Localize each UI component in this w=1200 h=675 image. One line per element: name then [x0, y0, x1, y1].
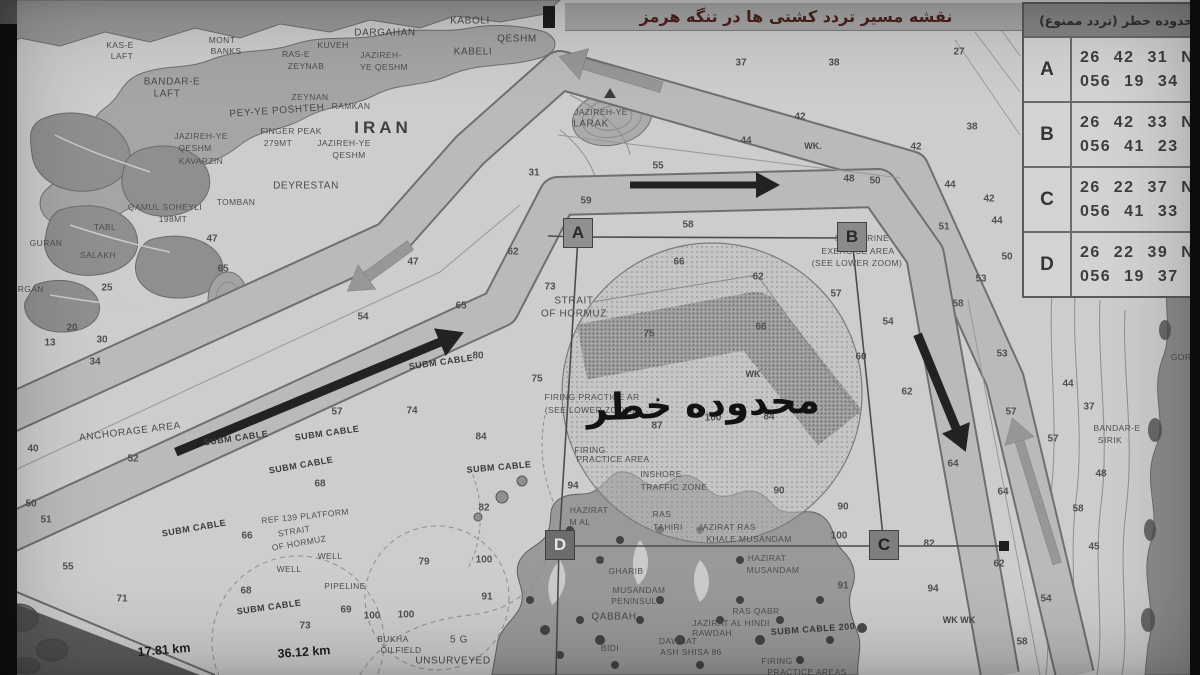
corner-marker-a: A — [563, 218, 593, 248]
depth-number: 48 — [843, 174, 854, 185]
depth-number: 47 — [407, 257, 418, 268]
depth-number: 62 — [901, 387, 912, 398]
place-label: BUKHA — [377, 634, 408, 644]
chart-title: نقشه مسیر تردد کشتی ها در تنگه هرمز — [565, 3, 1027, 31]
place-label: JAZIRAT AL HINDI — [692, 618, 770, 628]
place-label: TAHIRI — [653, 522, 683, 532]
depth-number: 71 — [116, 594, 127, 605]
place-label: IRAN — [354, 118, 412, 138]
chart-photo: KAS-ELAFTMONTBANKSBANDAR-ELAFTDARGAHANKU… — [0, 0, 1200, 675]
latitude-value: 26 22 37 N — [1080, 176, 1200, 200]
place-label: INSHORE — [640, 469, 682, 479]
wreck-label: WK. — [804, 141, 822, 151]
corner-marker-b: B — [837, 222, 867, 252]
depth-number: 54 — [1040, 594, 1051, 605]
place-label: SALAKH — [80, 250, 116, 260]
place-label: TOMBAN — [217, 197, 256, 207]
place-label: MONT — [209, 35, 236, 45]
depth-number: 42 — [983, 194, 994, 205]
place-label: UNSURVEYED — [415, 656, 490, 667]
point-coordinates: 26 22 39 N056 19 37 E — [1072, 233, 1200, 296]
place-label: DEYRESTAN — [273, 181, 339, 192]
place-label: GURAN — [30, 238, 63, 248]
depth-number: 38 — [828, 58, 839, 69]
latitude-value: 26 22 39 N — [1080, 241, 1200, 265]
table-row: D26 22 39 N056 19 37 E — [1024, 231, 1200, 296]
depth-number: 58 — [682, 220, 693, 231]
wreck-label: WK — [746, 369, 761, 379]
longitude-value: 056 19 37 E — [1080, 265, 1200, 289]
place-label: TABL — [94, 222, 116, 232]
place-label: ZEYNAN — [292, 92, 329, 102]
depth-number: 44 — [991, 216, 1002, 227]
depth-number: 90 — [773, 486, 784, 497]
wreck-label: WK WK — [943, 615, 976, 625]
depth-number: 82 — [923, 539, 934, 550]
depth-number: 73 — [299, 621, 310, 632]
depth-number: 20 — [66, 323, 77, 334]
coordinates-table-body: A26 42 31 N056 19 34 EB26 42 33 N056 41 … — [1024, 36, 1200, 296]
place-label: GHARIB — [609, 566, 644, 576]
depth-number: 57 — [1005, 407, 1016, 418]
depth-number: 65 — [455, 301, 466, 312]
place-label: KABELI — [454, 47, 493, 58]
place-label: HAZIRAT — [748, 553, 787, 563]
depth-number: 48 — [1095, 469, 1106, 480]
place-label: QESHM — [332, 150, 365, 160]
depth-number: 66 — [241, 531, 252, 542]
depth-number: 42 — [794, 112, 805, 123]
depth-number: 64 — [947, 459, 958, 470]
depth-number: 58 — [952, 299, 963, 310]
depth-number: 68 — [314, 479, 325, 490]
place-label: MUSANDAM — [613, 585, 666, 595]
coordinates-table-header: محدوده خطر (تردد ممنوع) — [1024, 4, 1200, 36]
table-row: B26 42 33 N056 41 23 E — [1024, 101, 1200, 166]
depth-number: 100 — [476, 555, 493, 566]
depth-number: 100 — [831, 531, 848, 542]
depth-number: 84 — [475, 432, 486, 443]
place-label: WELL — [277, 564, 302, 574]
depth-number: 79 — [418, 557, 429, 568]
depth-number: 94 — [567, 481, 578, 492]
depth-number: 50 — [869, 176, 880, 187]
table-row: A26 42 31 N056 19 34 E — [1024, 36, 1200, 101]
depth-number: 37 — [1083, 402, 1094, 413]
depth-number: 30 — [96, 335, 107, 346]
place-label: BANKS — [211, 46, 242, 56]
place-label: JAZIRAT RAS — [698, 522, 756, 532]
place-label: GOR — [1171, 352, 1192, 362]
depth-number: 44 — [1062, 379, 1073, 390]
latitude-value: 26 42 33 N — [1080, 111, 1200, 135]
depth-number: 53 — [996, 349, 1007, 360]
place-label: LAFT — [154, 89, 181, 100]
depth-number: 50 — [25, 499, 36, 510]
depth-number: 57 — [1047, 434, 1058, 445]
photo-edge-left-top — [0, 0, 17, 24]
place-label: (SEE LOWER ZOOM) — [812, 258, 902, 268]
danger-zone-label: محدوده خطر — [586, 378, 821, 429]
depth-number: 13 — [44, 338, 55, 349]
depth-number: 59 — [580, 196, 591, 207]
depth-number: 55 — [652, 161, 663, 172]
place-label: QESHM — [497, 34, 537, 45]
depth-number: 50 — [1001, 252, 1012, 263]
photo-edge-left — [0, 24, 17, 675]
coordinates-table: محدوده خطر (تردد ممنوع) A26 42 31 N056 1… — [1022, 2, 1200, 298]
depth-number: 51 — [40, 515, 51, 526]
place-label: KAVARZIN — [179, 156, 223, 166]
place-label: MUSANDAM — [747, 565, 800, 575]
place-label: KAS-E — [106, 40, 134, 50]
corner-marker-c: C — [869, 530, 899, 560]
place-label: PENINSULA — [611, 596, 663, 606]
photo-layer: KAS-ELAFTMONTBANKSBANDAR-ELAFTDARGAHANKU… — [0, 0, 1200, 675]
depth-number: 64 — [997, 487, 1008, 498]
place-label: SIRIK — [1098, 435, 1122, 445]
place-label: JAZIREH- — [360, 50, 401, 60]
place-label: LARAK — [573, 119, 609, 130]
longitude-value: 056 41 23 E — [1080, 135, 1200, 159]
depth-number: 62 — [752, 272, 763, 283]
depth-number: 74 — [406, 406, 417, 417]
place-label: M AL — [570, 517, 591, 527]
depth-number: 58 — [1016, 637, 1027, 648]
depth-number: 91 — [837, 581, 848, 592]
depth-number: 60 — [855, 352, 866, 363]
place-label: WELL — [318, 551, 343, 561]
place-label: QABBAH — [591, 612, 636, 623]
place-label: 5 G — [450, 635, 468, 646]
depth-number: 62 — [993, 559, 1004, 570]
depth-number: 91 — [481, 592, 492, 603]
point-letter: D — [1024, 233, 1072, 296]
depth-number: 75 — [643, 329, 654, 340]
place-label: OF HORMUZ — [541, 309, 607, 320]
depth-number: 80 — [472, 351, 483, 362]
place-label: ASH SHISA 86 — [660, 647, 722, 657]
depth-number: 42 — [910, 142, 921, 153]
depth-number: 57 — [331, 407, 342, 418]
depth-number: 66 — [673, 257, 684, 268]
depth-number: 94 — [927, 584, 938, 595]
corner-marker-d: D — [545, 530, 575, 560]
depth-number: 47 — [206, 234, 217, 245]
place-label: PRACTICE AREAS — [767, 667, 846, 675]
place-label: HAZIRAT — [570, 505, 609, 515]
place-label: TRAFFIC ZONE — [641, 482, 708, 492]
place-label: BANDAR-E — [144, 77, 200, 88]
place-label: LAFT — [111, 51, 133, 61]
longitude-value: 056 41 33 E — [1080, 200, 1200, 224]
depth-number: 100 — [398, 610, 415, 621]
depth-number: 34 — [89, 357, 100, 368]
place-label: QAMUL SOHEYLI — [128, 202, 202, 212]
place-label: DARGAHAN — [354, 28, 415, 39]
place-label: RAWDAH — [692, 628, 732, 638]
place-label: 198MT — [159, 214, 187, 224]
depth-number: 66 — [755, 322, 766, 333]
place-label: JAZIREH-YE — [574, 107, 628, 117]
place-label: RAS — [653, 509, 672, 519]
place-label: RAMKAN — [332, 101, 371, 111]
chart-symbol — [543, 6, 555, 28]
depth-number: 53 — [975, 274, 986, 285]
depth-number: 40 — [27, 444, 38, 455]
depth-number: 75 — [531, 374, 542, 385]
place-label: DAWHAT — [659, 636, 697, 646]
depth-number: 27 — [953, 47, 964, 58]
photo-edge-right — [1190, 0, 1200, 675]
place-label: BIDI — [601, 643, 619, 653]
point-letter: B — [1024, 103, 1072, 166]
place-label: OILFIELD — [381, 645, 422, 655]
place-label: JAZIREH-YE — [317, 138, 371, 148]
depth-number: 44 — [944, 180, 955, 191]
place-label: ZEYNAB — [288, 61, 324, 71]
depth-number: 57 — [830, 289, 841, 300]
depth-number: 55 — [62, 562, 73, 573]
depth-number: 69 — [340, 605, 351, 616]
place-label: FINGER PEAK — [260, 126, 322, 136]
longitude-value: 056 19 34 E — [1080, 70, 1200, 94]
place-label: RAS QABR — [732, 606, 779, 616]
depth-number: 52 — [127, 454, 138, 465]
point-coordinates: 26 22 37 N056 41 33 E — [1072, 168, 1200, 231]
latitude-value: 26 42 31 N — [1080, 46, 1200, 70]
place-label: JAZIREH-YE — [174, 131, 228, 141]
place-label: BANDAR-E — [1093, 423, 1140, 433]
depth-number: 54 — [357, 312, 368, 323]
point-letter: A — [1024, 38, 1072, 101]
depth-number: 38 — [966, 122, 977, 133]
place-label: RAS-E — [282, 49, 310, 59]
place-label: FIRING — [761, 656, 792, 666]
depth-number: 37 — [735, 58, 746, 69]
depth-number: 100 — [364, 611, 381, 622]
place-label: KUVEH — [317, 40, 348, 50]
place-label: KABOLI — [450, 16, 490, 27]
depth-number: 54 — [882, 317, 893, 328]
depth-number: 58 — [1072, 504, 1083, 515]
depth-number: 62 — [507, 247, 518, 258]
depth-number: 44 — [740, 136, 751, 147]
place-label: PIPELINE — [324, 581, 365, 591]
place-label: KHALE MUSANDAM — [706, 534, 791, 544]
place-label: PRACTICE AREA — [576, 454, 649, 464]
place-label: 279MT — [264, 138, 292, 148]
depth-number: 90 — [837, 502, 848, 513]
nautical-chart-graphic — [0, 0, 1200, 675]
depth-number: 68 — [240, 586, 251, 597]
table-row: C26 22 37 N056 41 33 E — [1024, 166, 1200, 231]
depth-number: 51 — [938, 222, 949, 233]
depth-number: 45 — [1088, 542, 1099, 553]
point-coordinates: 26 42 33 N056 41 23 E — [1072, 103, 1200, 166]
depth-number: 31 — [528, 168, 539, 179]
place-label: YE QESHM — [360, 62, 408, 72]
place-label: STRAIT — [554, 296, 593, 307]
depth-number: 65 — [217, 264, 228, 275]
point-letter: C — [1024, 168, 1072, 231]
depth-number: 73 — [544, 282, 555, 293]
point-coordinates: 26 42 31 N056 19 34 E — [1072, 38, 1200, 101]
depth-number: 82 — [478, 503, 489, 514]
depth-number: 25 — [101, 283, 112, 294]
place-label: QESHM — [178, 143, 211, 153]
